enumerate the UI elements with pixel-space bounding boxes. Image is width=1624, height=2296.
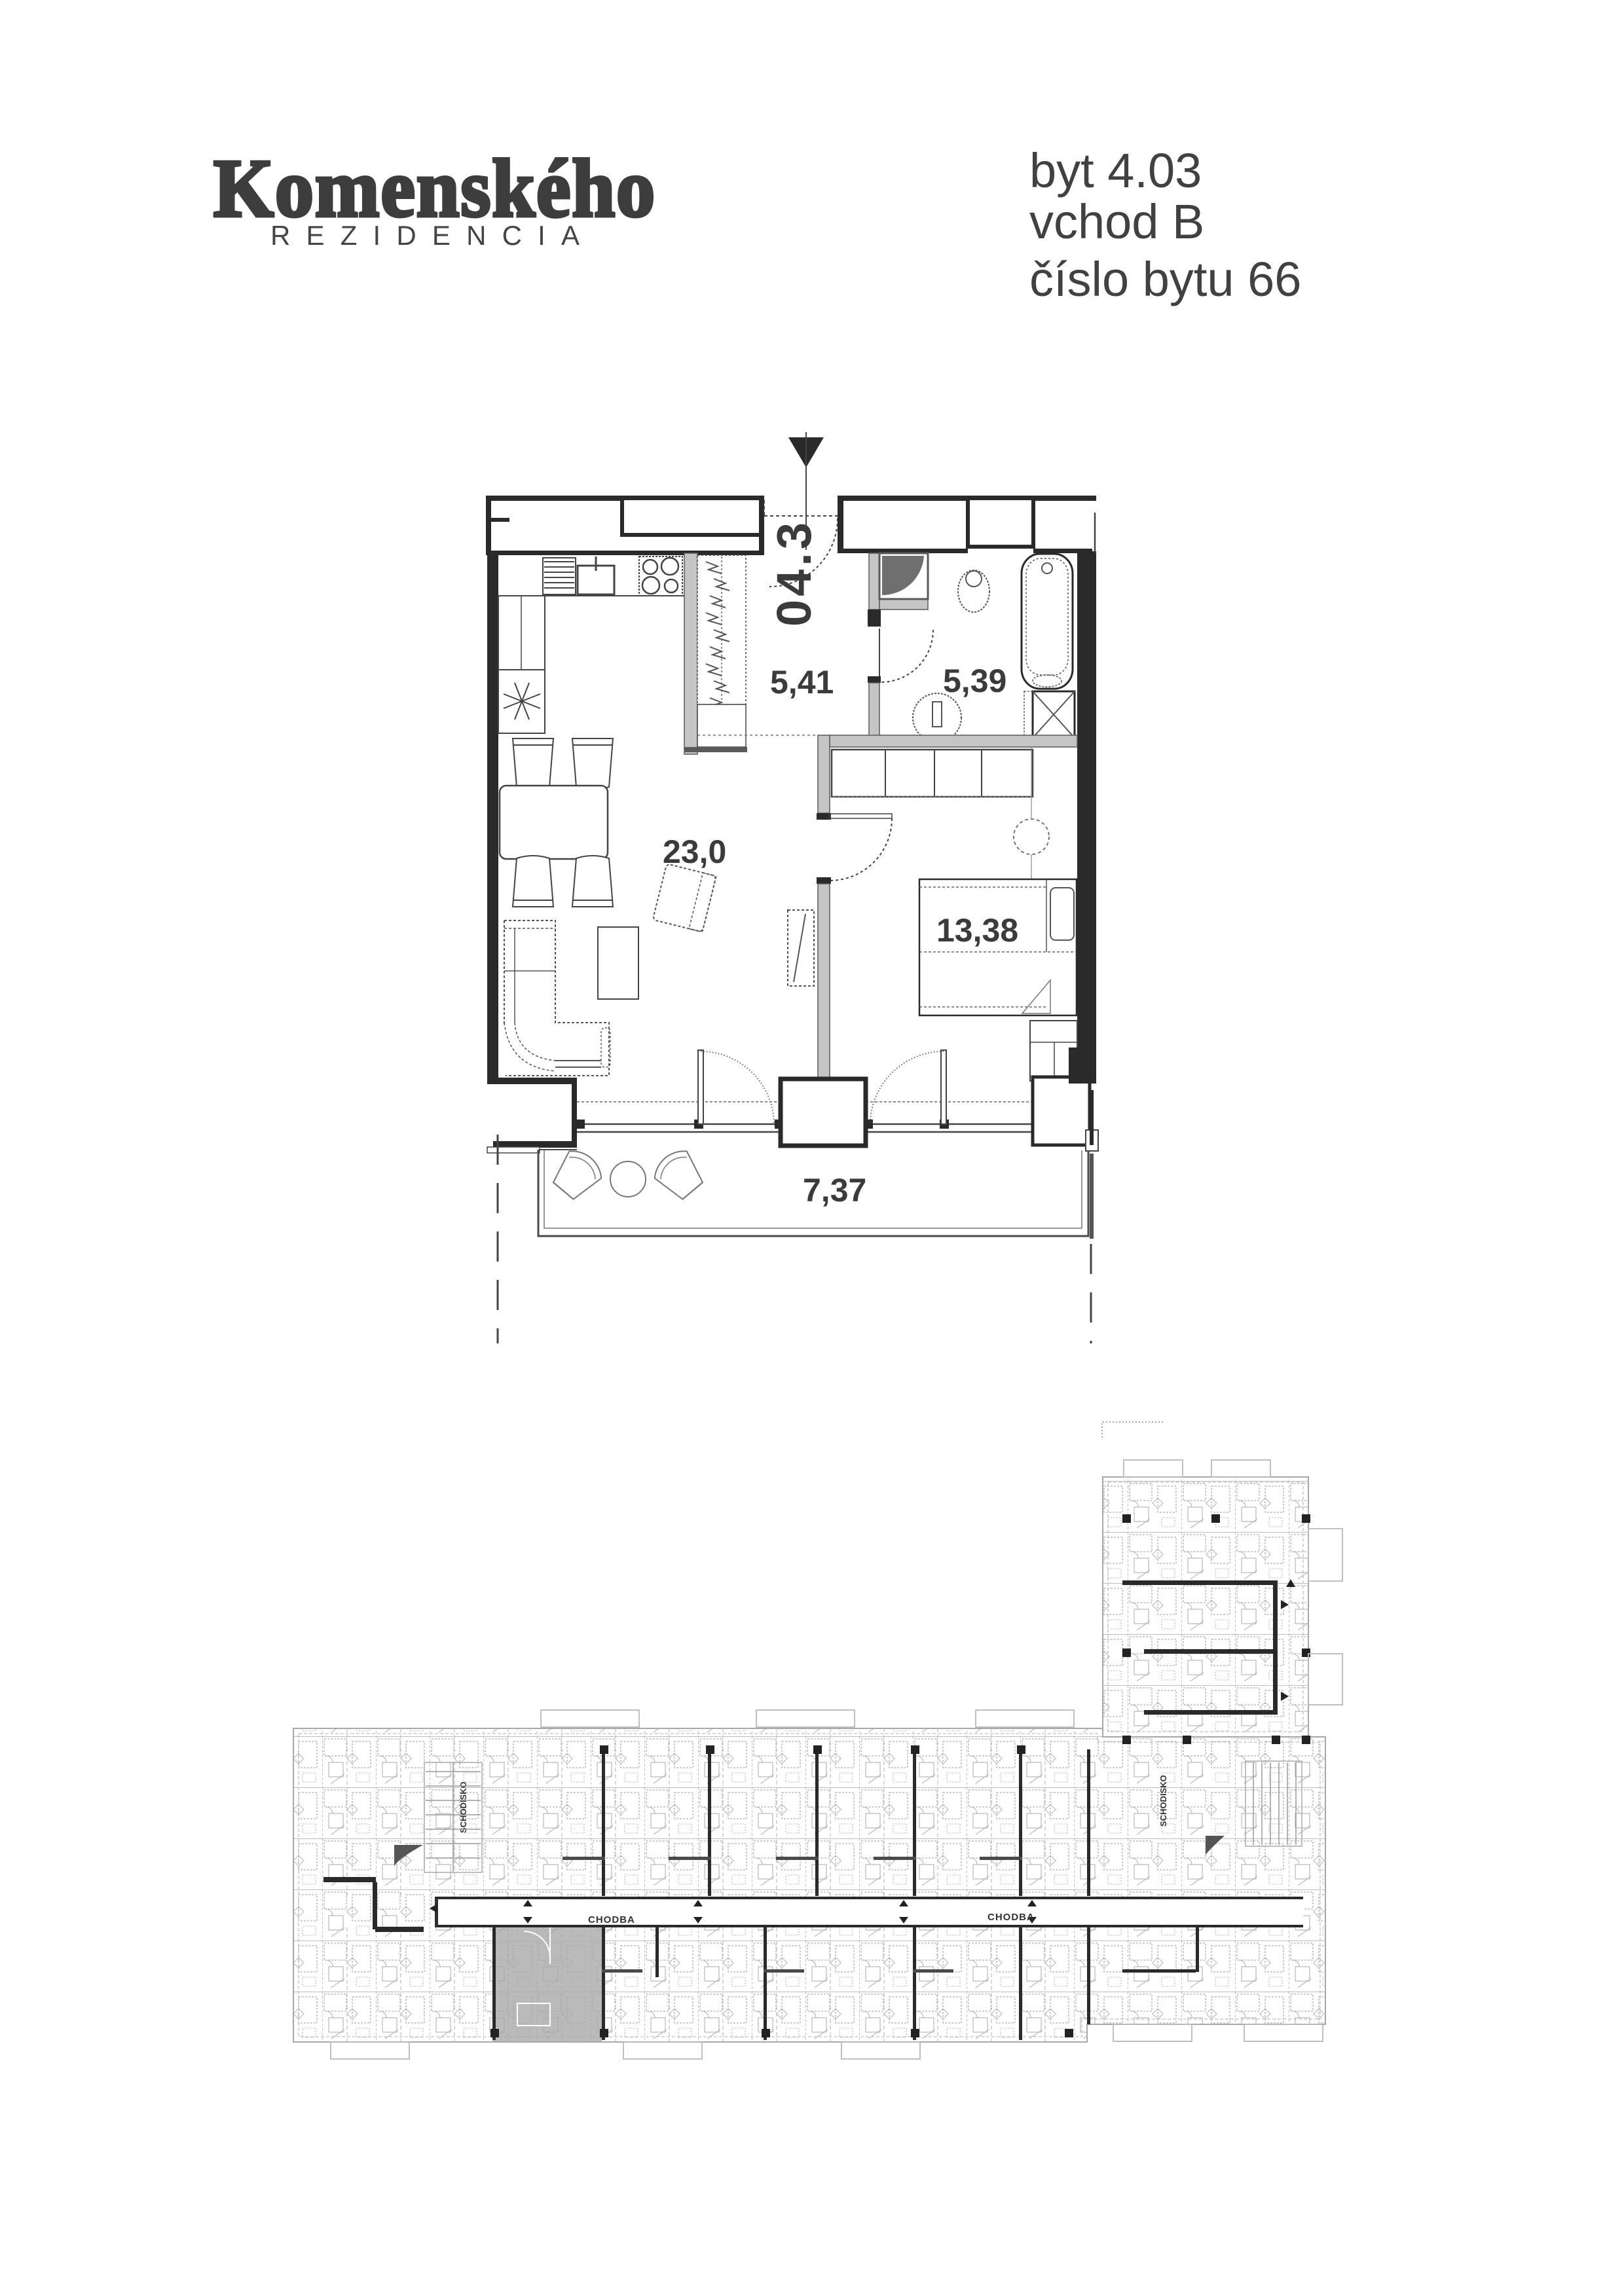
svg-text:SCHODISKO: SCHODISKO <box>1158 1775 1168 1827</box>
svg-text:CHODBA: CHODBA <box>987 1912 1035 1923</box>
svg-text:CHODBA: CHODBA <box>588 1914 635 1925</box>
svg-text:SCHODISKO: SCHODISKO <box>458 1781 468 1833</box>
